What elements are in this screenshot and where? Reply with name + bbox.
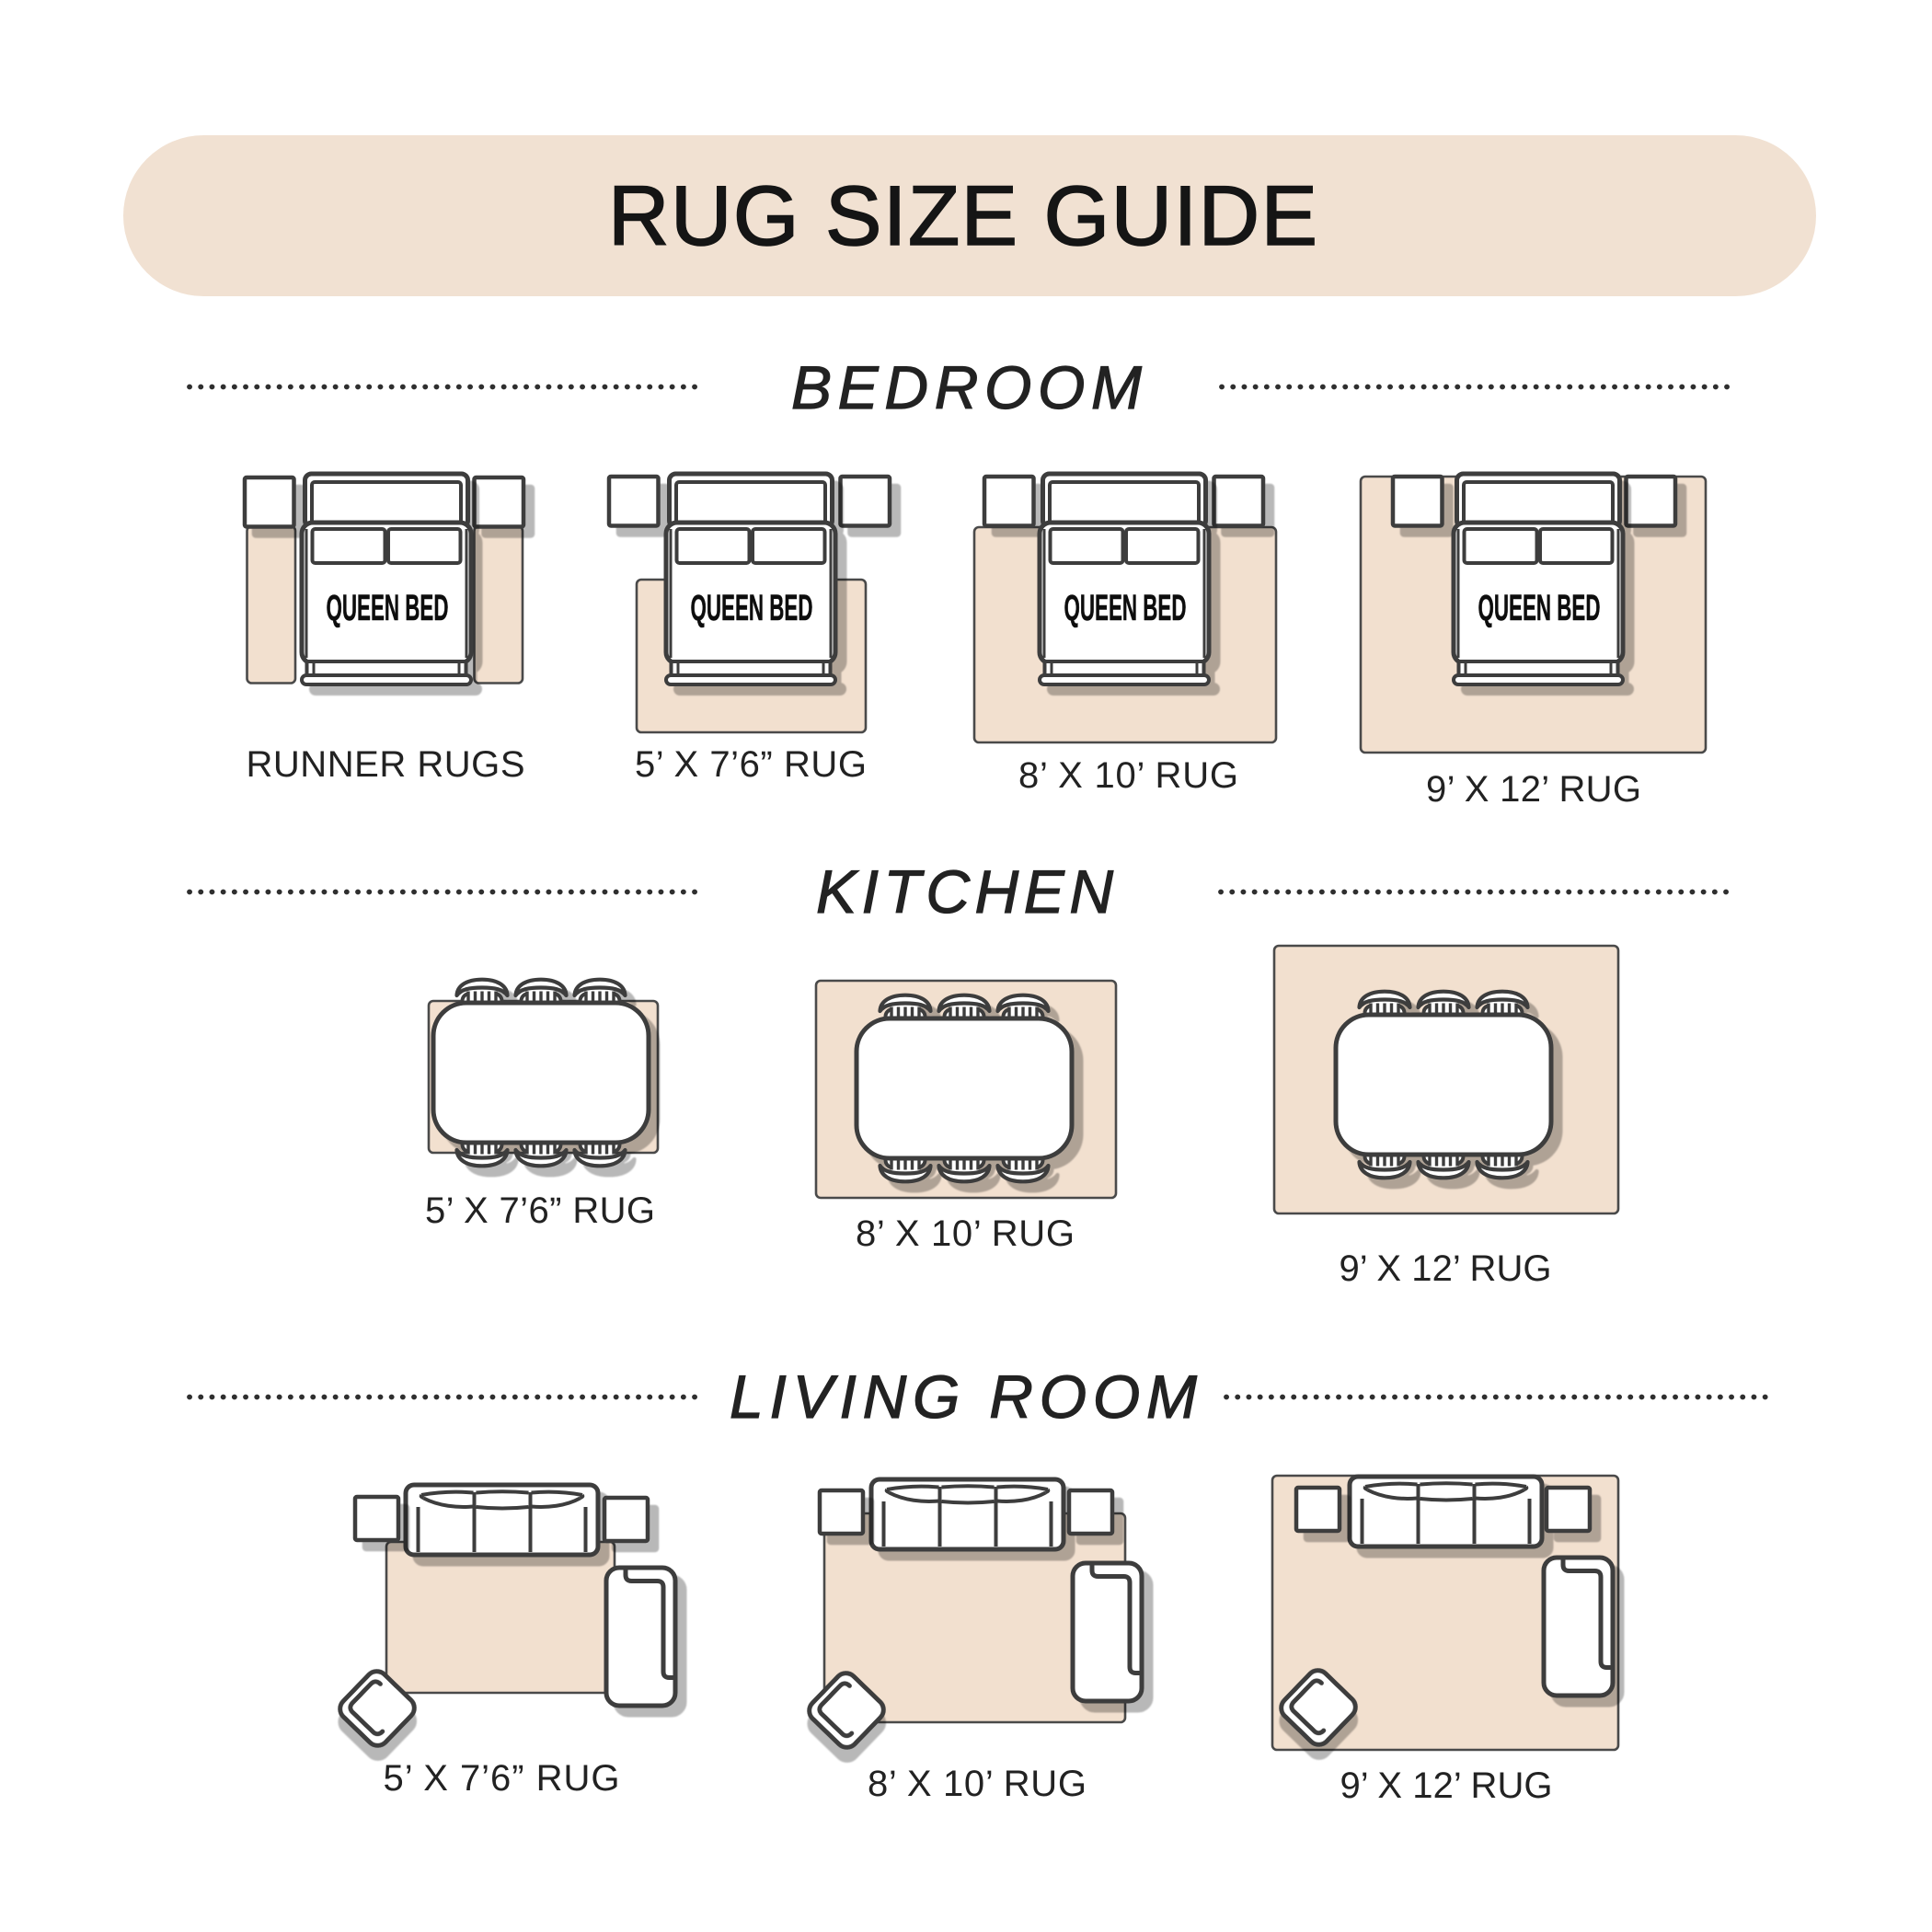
svg-text:9’ X 12’ RUG: 9’ X 12’ RUG: [1340, 1248, 1552, 1289]
svg-text:RUG SIZE GUIDE: RUG SIZE GUIDE: [608, 169, 1317, 263]
svg-text:9’ X 12’ RUG: 9’ X 12’ RUG: [1426, 769, 1641, 810]
svg-text:5’ X 7’6” RUG: 5’ X 7’6” RUG: [635, 744, 867, 785]
svg-text:8’ X 10’ RUG: 8’ X 10’ RUG: [856, 1213, 1075, 1254]
svg-text:8’ X 10’ RUG: 8’ X 10’ RUG: [1018, 755, 1238, 796]
svg-text:9’ X 12’ RUG: 9’ X 12’ RUG: [1340, 1765, 1553, 1806]
svg-text:RUNNER RUGS: RUNNER RUGS: [247, 744, 525, 785]
svg-text:8’ X 10’ RUG: 8’ X 10’ RUG: [868, 1764, 1087, 1804]
svg-text:5’ X 7’6” RUG: 5’ X 7’6” RUG: [384, 1758, 620, 1799]
svg-text:5’ X 7’6” RUG: 5’ X 7’6” RUG: [425, 1190, 655, 1231]
